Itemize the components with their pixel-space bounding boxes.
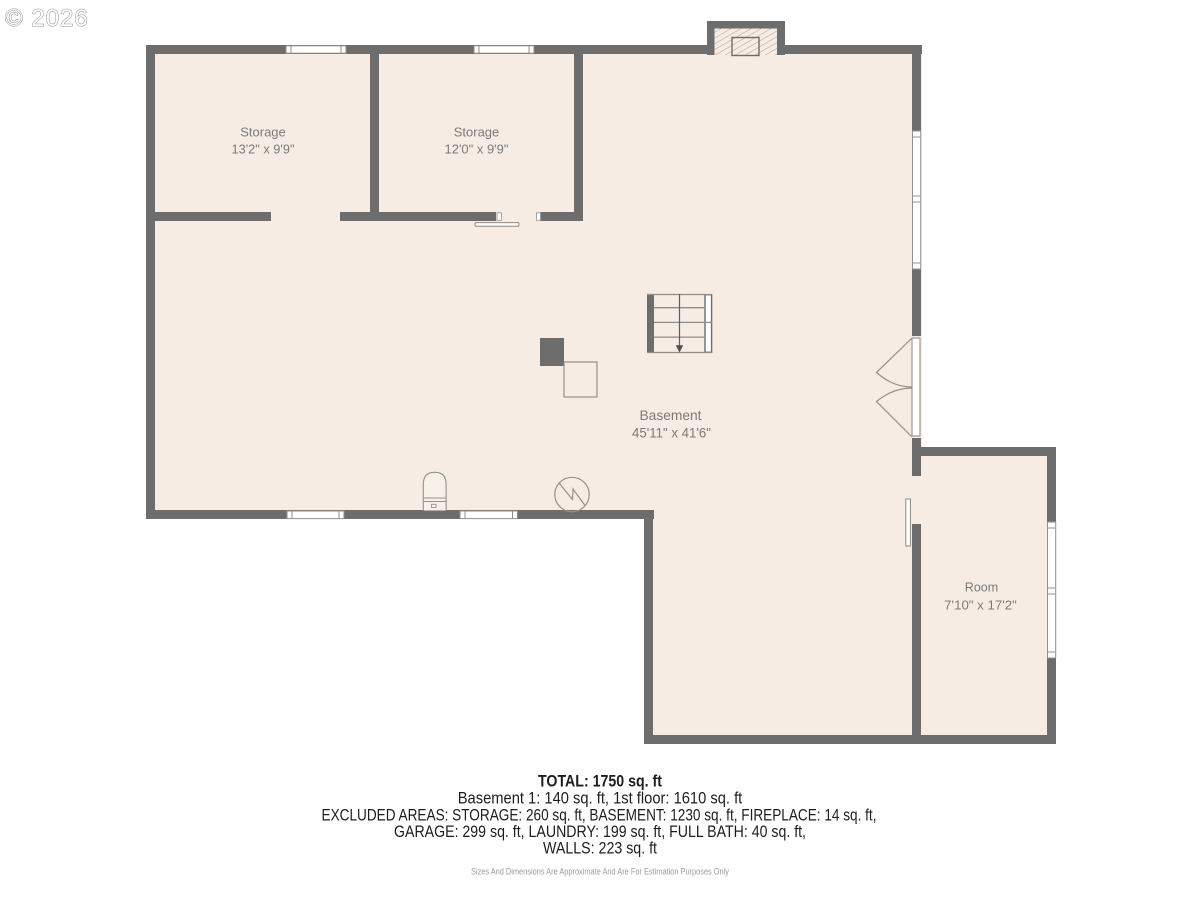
svg-text:45'11" x 41'6": 45'11" x 41'6": [632, 425, 711, 441]
svg-text:13'2" x 9'9": 13'2" x 9'9": [232, 142, 295, 157]
svg-text:TOTAL: 1750 sq. ft: TOTAL: 1750 sq. ft: [538, 773, 662, 791]
svg-text:Basement: Basement: [640, 407, 702, 423]
svg-text:EXCLUDED AREAS: STORAGE: 260 s: EXCLUDED AREAS: STORAGE: 260 sq. ft, BAS…: [322, 807, 877, 825]
svg-text:WALLS: 223 sq. ft: WALLS: 223 sq. ft: [543, 840, 657, 858]
svg-text:7'10" x 17'2": 7'10" x 17'2": [944, 598, 1017, 613]
svg-text:Room: Room: [965, 580, 998, 595]
svg-text:Sizes And Dimensions Are Appro: Sizes And Dimensions Are Approximate And…: [471, 867, 729, 877]
svg-text:GARAGE: 299 sq. ft, LAUNDRY: 1: GARAGE: 299 sq. ft, LAUNDRY: 199 sq. ft,…: [394, 823, 806, 841]
svg-text:Storage: Storage: [240, 124, 286, 139]
svg-text:© 2026: © 2026: [5, 5, 89, 32]
svg-text:12'0" x 9'9": 12'0" x 9'9": [445, 142, 509, 157]
svg-text:Basement 1: 140 sq. ft, 1st fl: Basement 1: 140 sq. ft, 1st floor: 1610 …: [458, 790, 743, 808]
svg-text:Storage: Storage: [454, 124, 500, 139]
